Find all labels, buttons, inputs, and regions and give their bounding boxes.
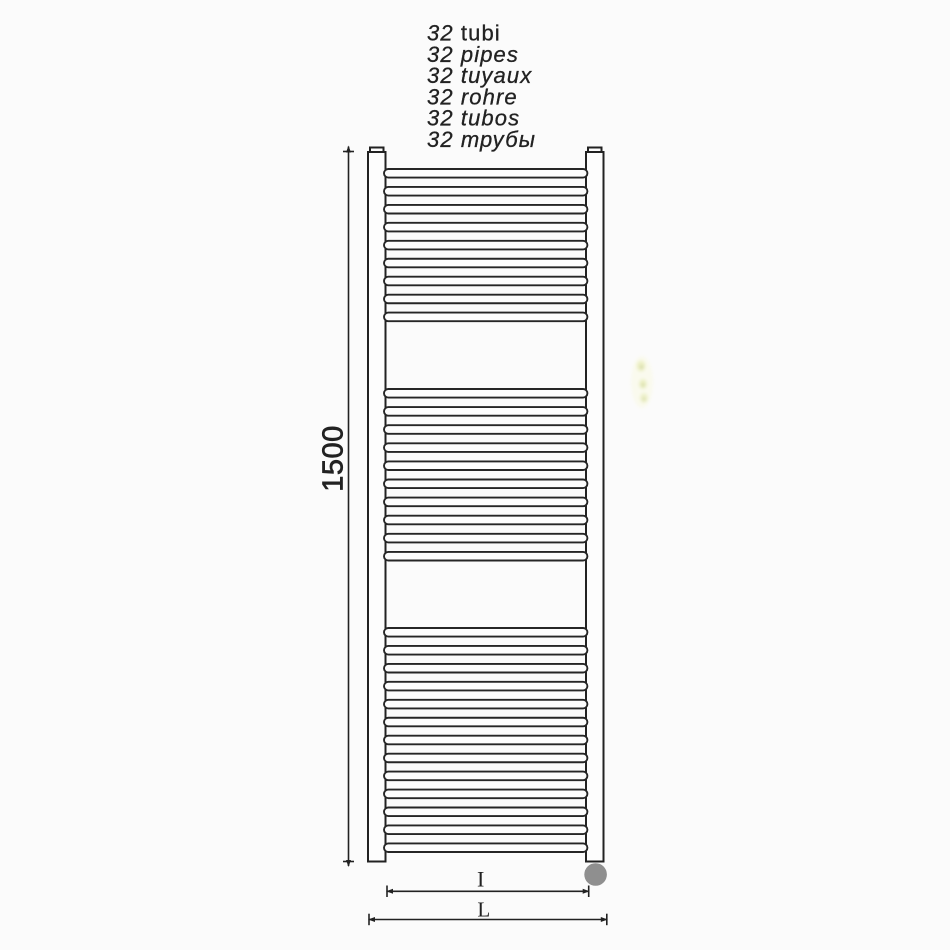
svg-text:32 трубы: 32 трубы bbox=[427, 127, 536, 152]
svg-text:1500: 1500 bbox=[318, 425, 350, 492]
svg-text:L: L bbox=[477, 898, 490, 922]
svg-text:I: I bbox=[477, 867, 484, 892]
